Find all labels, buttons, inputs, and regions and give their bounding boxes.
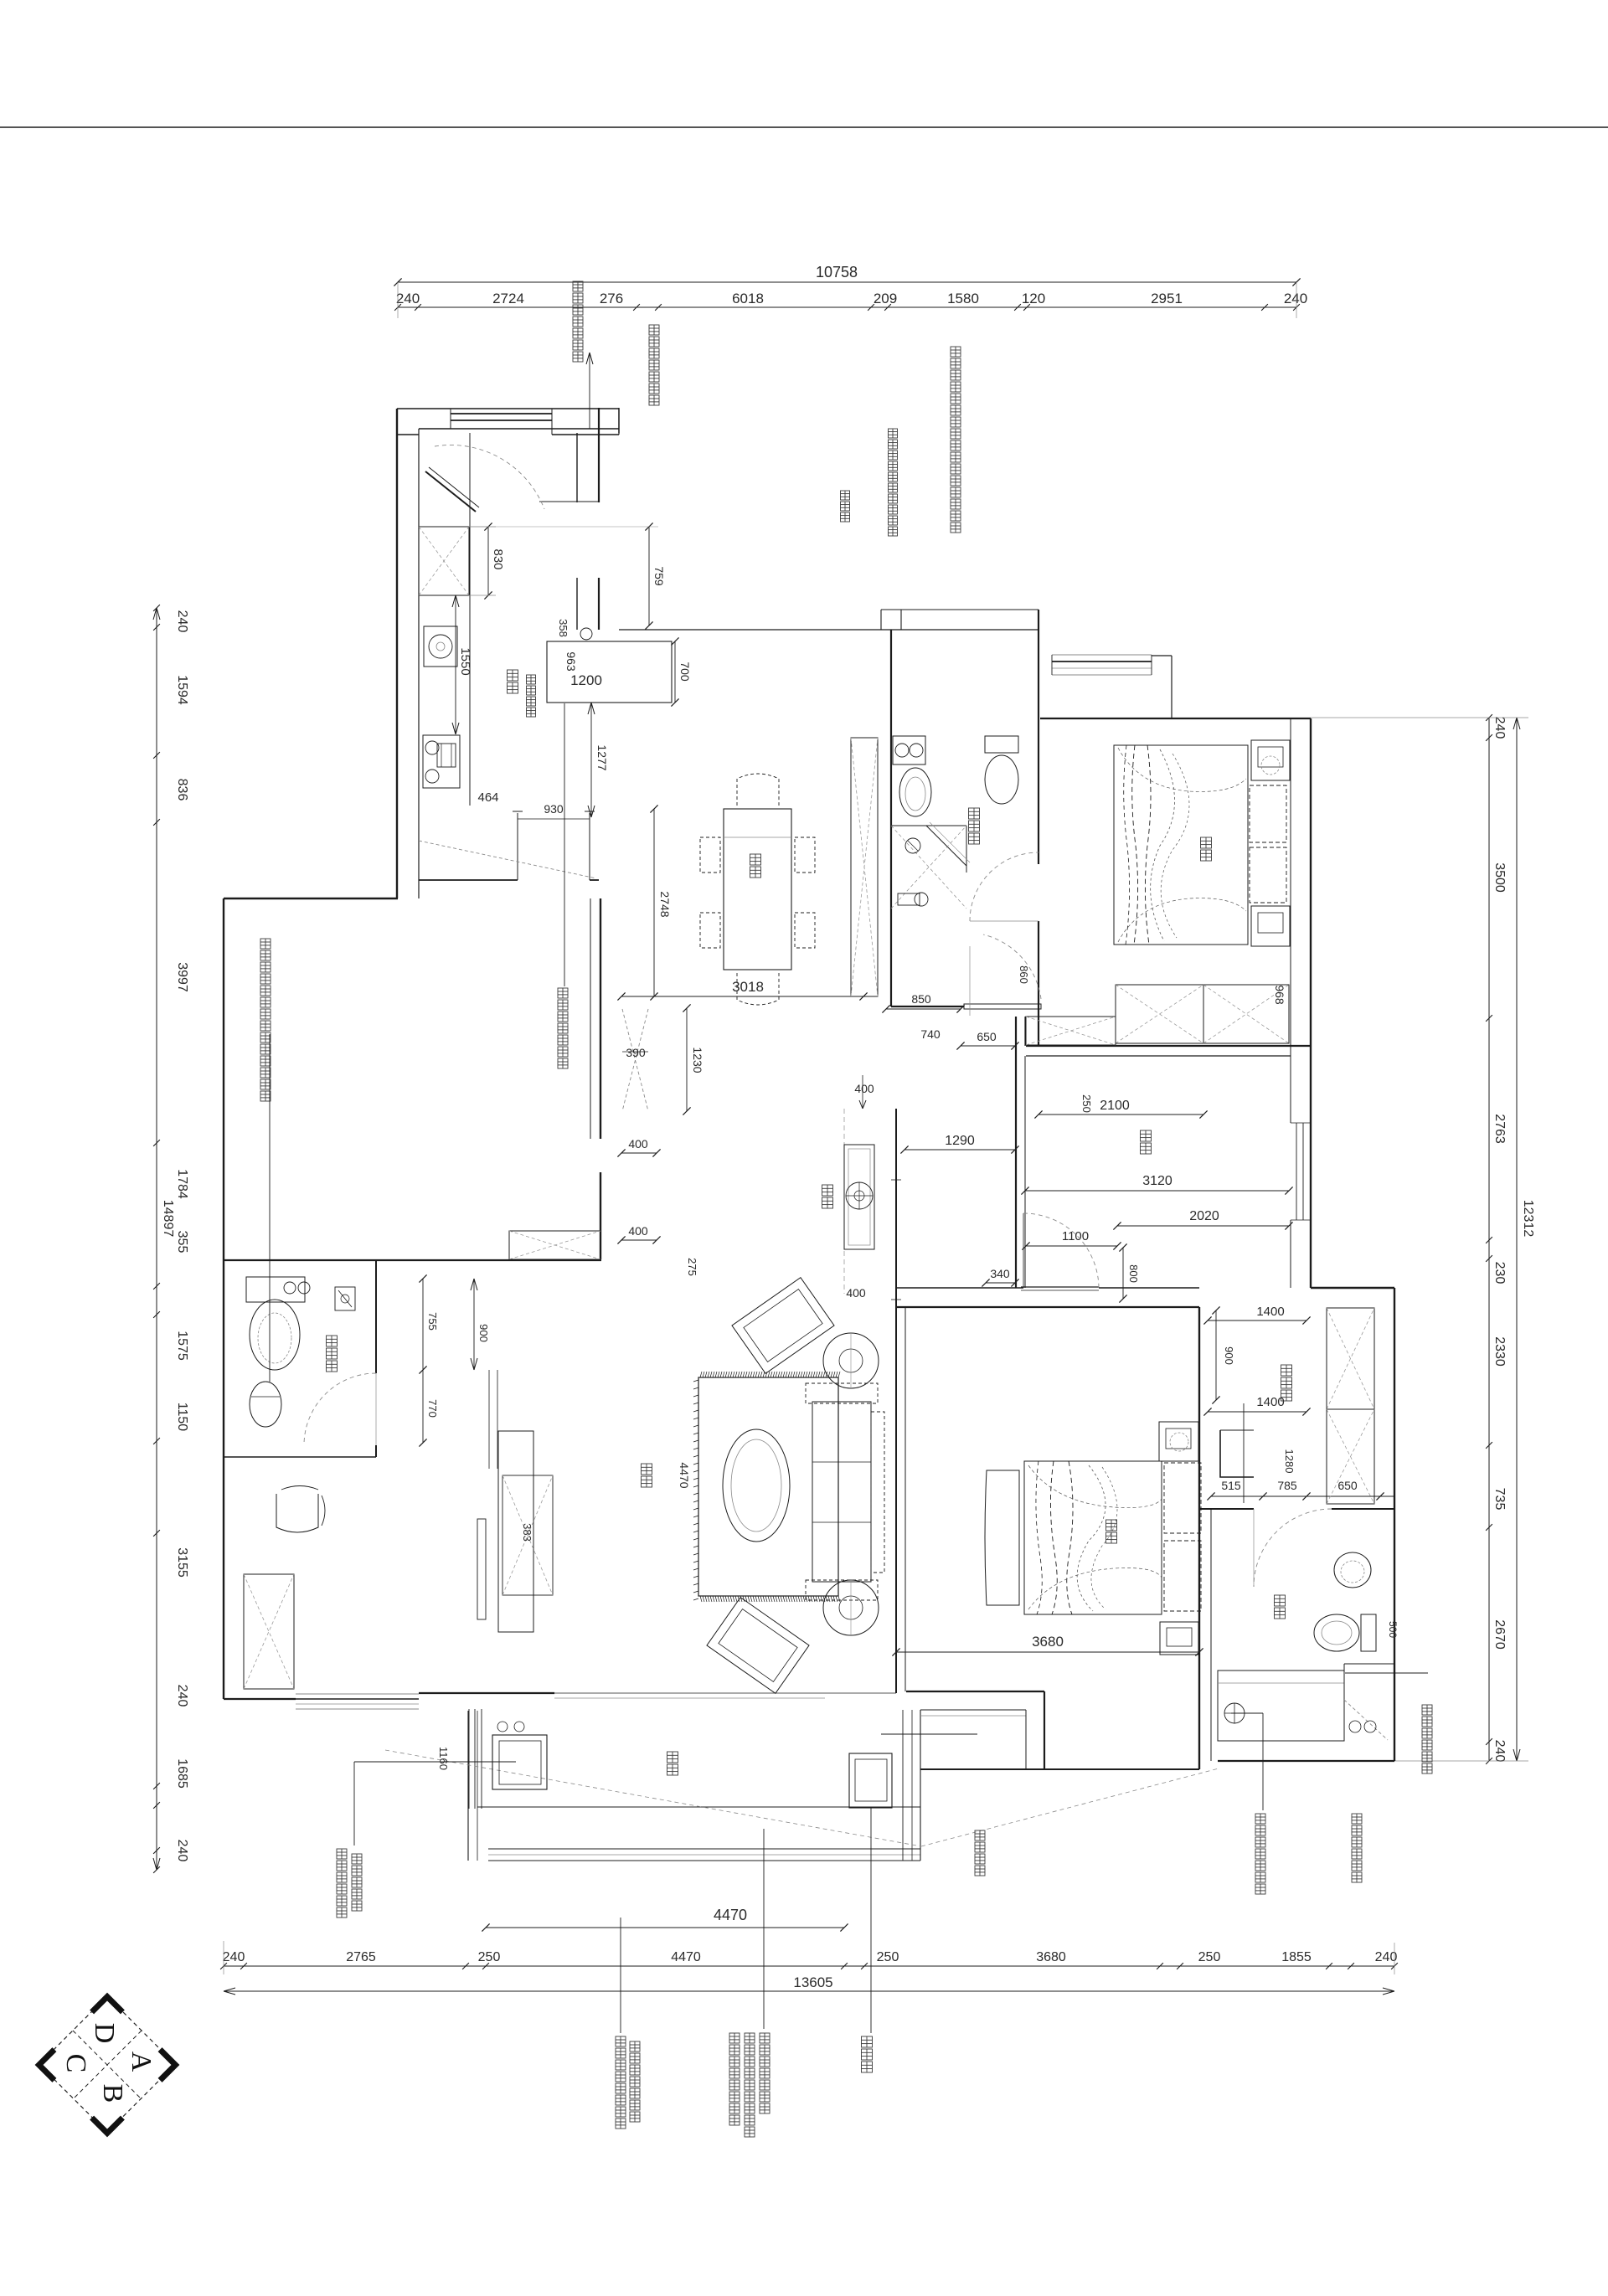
svg-text:2763: 2763 xyxy=(1492,1114,1507,1144)
svg-text:1685: 1685 xyxy=(175,1758,189,1789)
svg-text:3120: 3120 xyxy=(1142,1174,1172,1188)
svg-text:3155: 3155 xyxy=(175,1547,189,1578)
svg-text:2670: 2670 xyxy=(1492,1619,1507,1650)
svg-text:14897: 14897 xyxy=(161,1200,175,1238)
svg-text:515: 515 xyxy=(1221,1479,1241,1492)
svg-text:1575: 1575 xyxy=(175,1331,189,1361)
svg-text:700: 700 xyxy=(678,662,692,682)
svg-text:250: 250 xyxy=(1080,1094,1093,1113)
svg-text:1280: 1280 xyxy=(1283,1449,1296,1474)
svg-text:4470: 4470 xyxy=(671,1950,701,1964)
svg-text:740: 740 xyxy=(920,1027,941,1041)
svg-text:1200: 1200 xyxy=(570,672,602,688)
svg-text:A: A xyxy=(126,2051,157,2072)
svg-text:3680: 3680 xyxy=(1032,1634,1064,1650)
svg-text:4470: 4470 xyxy=(678,1462,691,1488)
svg-text:1400: 1400 xyxy=(1256,1395,1284,1409)
svg-text:240: 240 xyxy=(1492,1740,1507,1763)
svg-text:759: 759 xyxy=(652,566,666,586)
svg-text:900: 900 xyxy=(1223,1346,1235,1365)
svg-text:355: 355 xyxy=(175,1231,189,1254)
svg-text:1580: 1580 xyxy=(947,291,979,306)
svg-text:1160: 1160 xyxy=(437,1747,450,1770)
svg-text:830: 830 xyxy=(491,548,505,569)
svg-text:1855: 1855 xyxy=(1281,1950,1312,1964)
svg-text:10758: 10758 xyxy=(816,264,858,281)
svg-text:400: 400 xyxy=(628,1137,648,1151)
svg-text:1100: 1100 xyxy=(1062,1229,1089,1243)
svg-text:358: 358 xyxy=(557,619,569,637)
svg-text:390: 390 xyxy=(626,1046,646,1059)
svg-text:1784: 1784 xyxy=(175,1169,189,1199)
svg-text:850: 850 xyxy=(911,992,931,1006)
svg-text:1150: 1150 xyxy=(175,1403,189,1432)
svg-text:930: 930 xyxy=(544,802,564,816)
svg-text:209: 209 xyxy=(874,291,897,306)
svg-text:240: 240 xyxy=(175,1840,189,1862)
svg-text:240: 240 xyxy=(1375,1950,1398,1964)
svg-text:2748: 2748 xyxy=(658,891,672,917)
svg-text:4470: 4470 xyxy=(714,1907,747,1923)
svg-text:650: 650 xyxy=(977,1030,997,1043)
svg-text:12312: 12312 xyxy=(1521,1200,1535,1238)
svg-text:6018: 6018 xyxy=(732,291,764,306)
svg-text:230: 230 xyxy=(1492,1262,1507,1284)
svg-text:240: 240 xyxy=(1492,717,1507,739)
svg-text:2724: 2724 xyxy=(492,291,524,306)
svg-text:900: 900 xyxy=(477,1324,490,1342)
svg-text:D: D xyxy=(89,2023,120,2044)
svg-text:836: 836 xyxy=(175,779,189,801)
svg-text:3500: 3500 xyxy=(1492,862,1507,893)
svg-text:240: 240 xyxy=(175,1685,189,1707)
svg-text:464: 464 xyxy=(477,790,498,805)
svg-text:3997: 3997 xyxy=(175,962,189,992)
svg-text:800: 800 xyxy=(1127,1264,1140,1283)
svg-text:400: 400 xyxy=(854,1082,874,1095)
svg-text:C: C xyxy=(60,2054,91,2073)
svg-text:120: 120 xyxy=(1022,291,1045,306)
svg-text:240: 240 xyxy=(1284,291,1307,306)
svg-text:770: 770 xyxy=(426,1399,439,1418)
svg-text:13605: 13605 xyxy=(793,1974,832,1990)
svg-text:3680: 3680 xyxy=(1036,1950,1066,1964)
svg-text:1550: 1550 xyxy=(458,647,472,675)
svg-text:650: 650 xyxy=(1337,1479,1358,1492)
svg-text:B: B xyxy=(97,2084,128,2103)
svg-text:1400: 1400 xyxy=(1256,1305,1284,1319)
svg-text:250: 250 xyxy=(877,1950,899,1964)
svg-text:2020: 2020 xyxy=(1189,1209,1219,1223)
svg-text:250: 250 xyxy=(1198,1950,1221,1964)
svg-text:500: 500 xyxy=(1387,1621,1399,1638)
svg-text:2765: 2765 xyxy=(346,1950,376,1964)
svg-text:2330: 2330 xyxy=(1492,1336,1507,1367)
svg-text:2951: 2951 xyxy=(1151,291,1183,306)
svg-text:276: 276 xyxy=(600,291,623,306)
svg-text:963: 963 xyxy=(564,651,578,672)
svg-text:735: 735 xyxy=(1492,1488,1507,1511)
svg-text:2100: 2100 xyxy=(1100,1099,1130,1113)
svg-text:1594: 1594 xyxy=(175,675,189,705)
svg-text:860: 860 xyxy=(1018,965,1030,984)
svg-text:240: 240 xyxy=(223,1950,245,1964)
svg-text:785: 785 xyxy=(1277,1479,1297,1492)
svg-text:1290: 1290 xyxy=(945,1134,975,1148)
svg-text:240: 240 xyxy=(396,291,420,306)
svg-text:400: 400 xyxy=(846,1286,866,1300)
svg-text:968: 968 xyxy=(1273,985,1286,1005)
svg-text:340: 340 xyxy=(990,1267,1010,1280)
svg-text:240: 240 xyxy=(175,610,189,633)
svg-text:3018: 3018 xyxy=(732,979,764,995)
svg-text:755: 755 xyxy=(426,1312,439,1331)
svg-text:1230: 1230 xyxy=(691,1047,704,1073)
svg-text:400: 400 xyxy=(628,1224,648,1238)
svg-text:275: 275 xyxy=(686,1258,698,1276)
svg-text:250: 250 xyxy=(478,1950,501,1964)
svg-text:383: 383 xyxy=(521,1523,533,1542)
svg-text:1277: 1277 xyxy=(595,744,609,770)
